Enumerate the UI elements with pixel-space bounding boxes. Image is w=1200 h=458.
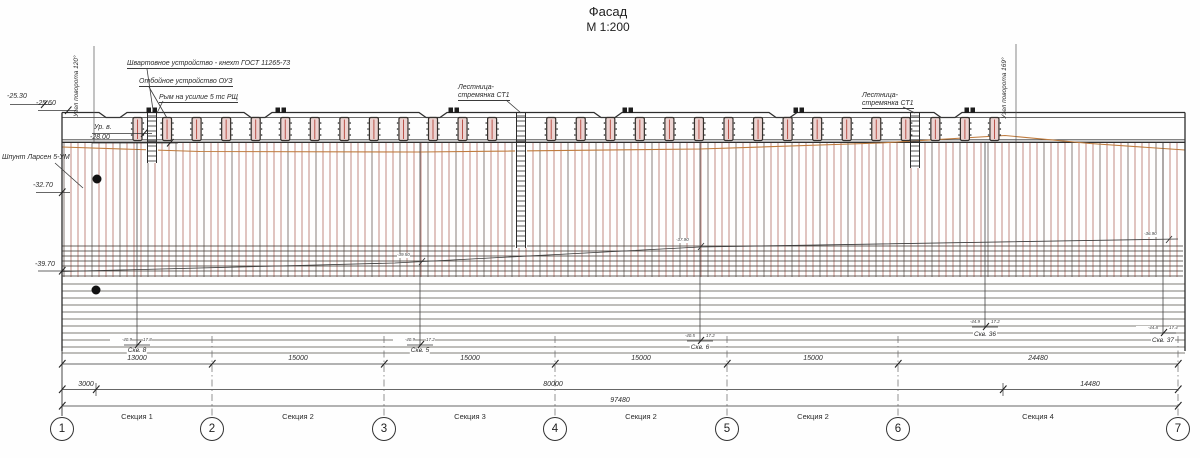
dim-label: 97480 — [610, 397, 629, 404]
tip-elevation-label: -39.50 — [397, 253, 410, 258]
borehole-label: Скв. 6 — [690, 345, 710, 352]
borehole-depth: 17.8 — [143, 338, 152, 343]
elevation-39-70: -39.70 — [35, 261, 55, 268]
facade-drawing-canvas: Фасад М 1:200 Швартовное устройство - кн… — [0, 0, 1200, 458]
dim-label: 3000 — [78, 381, 94, 388]
dim-label: 15000 — [288, 355, 307, 362]
borehole-depth: 17.4 — [1169, 326, 1178, 331]
borehole-elevation: -44.8 — [1136, 326, 1158, 331]
callout-ladder-right-line2: стремянка СТ1 — [862, 100, 914, 109]
borehole-elevation: -40.9 — [110, 338, 132, 343]
dim-label: 15000 — [803, 355, 822, 362]
borehole-elevation: -44.9 — [958, 320, 980, 325]
elevation-25-60: -25.60 — [36, 100, 56, 107]
grid-bubble: 2 — [200, 417, 224, 441]
grid-bubble: 1 — [50, 417, 74, 441]
section-label: Секция 2 — [797, 413, 829, 421]
grid-bubble: 3 — [372, 417, 396, 441]
elevation-25-30: -25.30 — [7, 93, 27, 100]
callout-ladder-mid-line1: Лестница- — [458, 84, 494, 91]
callout-mooring-bollard: Швартовное устройство - кнехт ГОСТ 11265… — [127, 60, 290, 69]
dim-label: 15000 — [460, 355, 479, 362]
bend-note-left: Узел поворота 120° — [74, 55, 81, 116]
dim-label: 14480 — [1080, 381, 1099, 388]
tip-elevation-label: -37.90 — [676, 238, 689, 243]
bend-note-right: Узел поворота 169° — [1002, 57, 1009, 118]
dim-label: 24480 — [1028, 355, 1047, 362]
section-label: Секция 4 — [1022, 413, 1054, 421]
borehole-label: Скв. 8 — [127, 348, 147, 355]
callout-rym-eye: Рым на усилие 5 тс РЩ — [159, 94, 238, 103]
dim-label: 15000 — [631, 355, 650, 362]
dim-label: 80000 — [543, 381, 562, 388]
elevation-28-00: -28.00 — [90, 134, 110, 141]
borehole-depth: 17.2 — [706, 334, 715, 339]
section-label: Секция 2 — [282, 413, 314, 421]
borehole-label: Скв. 37 — [1151, 338, 1175, 345]
grid-bubble: 5 — [715, 417, 739, 441]
page-title: Фасад — [538, 5, 678, 19]
sheet-pile-label: Шпунт Ларсен 5-УМ — [2, 154, 70, 161]
borehole-label: Скв. 5 — [410, 348, 430, 355]
grid-bubble: 4 — [543, 417, 567, 441]
grid-bubble: 6 — [886, 417, 910, 441]
grid-bubble: 7 — [1166, 417, 1190, 441]
borehole-depth: 17.2 — [991, 320, 1000, 325]
scale-label: М 1:200 — [538, 21, 678, 34]
section-label: Секция 2 — [625, 413, 657, 421]
callout-ladder-mid-line2: стремянка СТ1 — [458, 92, 510, 101]
borehole-depth: 17.2 — [426, 338, 435, 343]
section-label: Секция 3 — [454, 413, 486, 421]
borehole-elevation: -40.9 — [393, 338, 415, 343]
section-label: Секция 1 — [121, 413, 153, 421]
tip-elevation-label: -36.90 — [1144, 232, 1157, 237]
borehole-elevation: -40.5 — [673, 334, 695, 339]
callout-ladder-right-line1: Лестница- — [862, 92, 898, 99]
dim-label: 13000 — [127, 355, 146, 362]
borehole-label: Скв. 36 — [973, 332, 997, 339]
callout-fender-device: Отбойное устройство ОУЗ — [139, 78, 233, 87]
elevation-32-70: -32.70 — [33, 182, 53, 189]
water-level-label: Ур. в. — [94, 124, 112, 131]
